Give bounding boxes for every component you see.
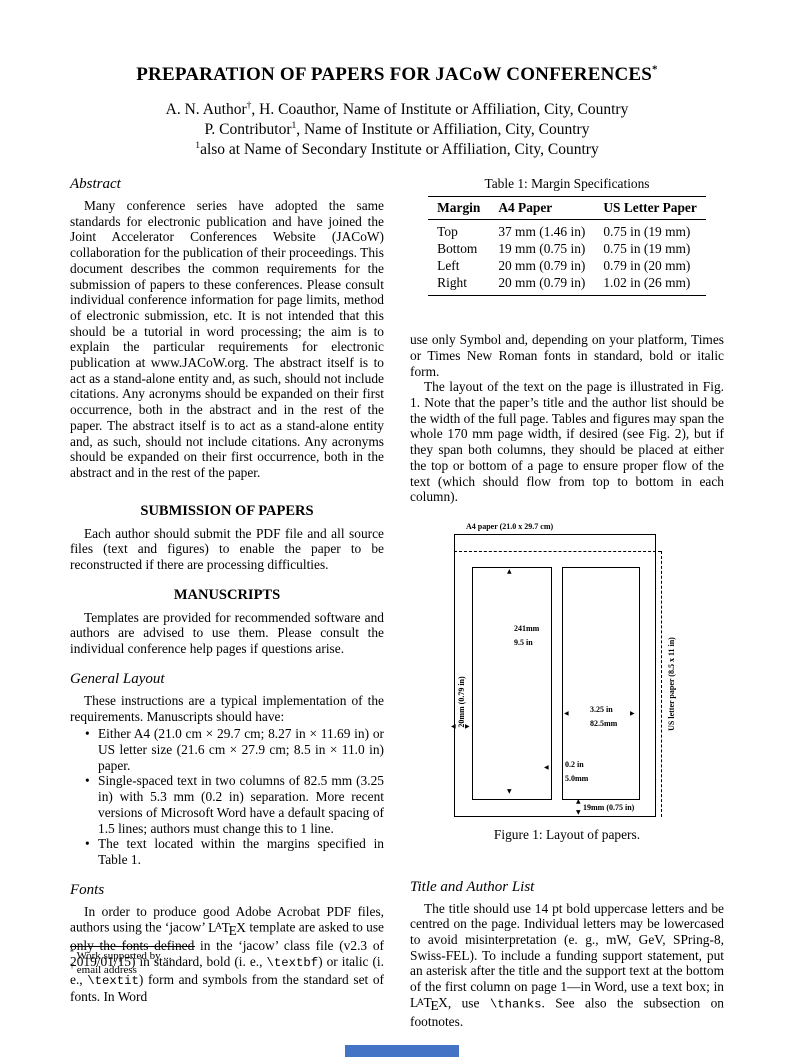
table-cell: 19 mm (0.75 in) bbox=[489, 241, 594, 258]
bottom-margin-label: 19mm (0.75 in) bbox=[583, 803, 634, 813]
table-row: Bottom 19 mm (0.75 in) 0.75 in (19 mm) bbox=[428, 241, 706, 258]
dimension-arrow-left-icon: ◀ bbox=[544, 765, 549, 771]
table-header-cell: A4 Paper bbox=[489, 196, 594, 220]
table-cell: Left bbox=[428, 257, 489, 274]
layout-paragraph: The layout of the text on the page is il… bbox=[410, 379, 724, 505]
footnote-marker: † bbox=[70, 961, 74, 970]
author-affiliation: , H. Coauthor, Name of Institute or Affi… bbox=[251, 101, 628, 118]
abstract-heading: Abstract bbox=[70, 176, 384, 193]
requirements-list: Either A4 (21.0 cm × 29.7 cm; 8.27 in × … bbox=[70, 726, 384, 867]
table-row: Left 20 mm (0.79 in) 0.79 in (20 mm) bbox=[428, 257, 706, 274]
author-line: 1also at Name of Secondary Institute or … bbox=[0, 140, 794, 160]
dimension-arrow-down-icon: ▼ bbox=[507, 789, 512, 795]
latex-logo: LATEX bbox=[410, 995, 448, 1010]
footnote-block: * Work supported by ... † email address bbox=[70, 946, 384, 977]
left-column: Abstract Many conference series have ado… bbox=[70, 176, 384, 1005]
author-list: A. N. Author†, H. Coauthor, Name of Inst… bbox=[0, 100, 794, 160]
column-width-in-label: 3.25 in bbox=[590, 705, 613, 715]
fonts-heading: Fonts bbox=[70, 882, 384, 899]
column-height-mm-label: 241mm bbox=[514, 624, 539, 634]
author-line: P. Contributor1, Name of Institute or Af… bbox=[0, 120, 794, 140]
latex-logo: LATEX bbox=[208, 920, 246, 935]
table-cell: 1.02 in (26 mm) bbox=[594, 274, 705, 296]
dimension-arrow-left-icon: ◀ bbox=[451, 724, 456, 730]
footnote-line: † email address bbox=[70, 964, 384, 978]
table-cell: Right bbox=[428, 274, 489, 296]
table-caption: Table 1: Margin Specifications bbox=[410, 176, 724, 192]
figure-caption: Figure 1: Layout of papers. bbox=[410, 827, 724, 843]
list-item: Single-spaced text in two columns of 82.… bbox=[98, 773, 384, 836]
table-cell: 37 mm (1.46 in) bbox=[489, 220, 594, 241]
a4-paper-label: A4 paper (21.0 x 29.7 cm) bbox=[466, 522, 553, 532]
table-cell: Top bbox=[428, 220, 489, 241]
footnote-rule bbox=[70, 946, 195, 947]
paper-title: PREPARATION OF PAPERS FOR JACoW CONFEREN… bbox=[0, 64, 794, 86]
column-height-in-label: 9.5 in bbox=[514, 638, 533, 648]
column-gap-in-label: 0.2 in bbox=[565, 760, 584, 770]
paper-page: PREPARATION OF PAPERS FOR JACoW CONFEREN… bbox=[0, 0, 794, 1057]
manuscripts-heading: MANUSCRIPTS bbox=[70, 587, 384, 604]
us-letter-paper-label: US letter paper (8.5 x 11 in) bbox=[664, 637, 680, 731]
dimension-arrow-up-icon: ▲ bbox=[507, 569, 512, 575]
column-gap-mm-label: 5.0mm bbox=[565, 774, 588, 784]
paper-header: PREPARATION OF PAPERS FOR JACoW CONFEREN… bbox=[0, 64, 794, 160]
general-layout-paragraph: These instructions are a typical impleme… bbox=[70, 693, 384, 724]
author-affiliation: also at Name of Secondary Institute or A… bbox=[200, 141, 599, 158]
table-cell: 0.75 in (19 mm) bbox=[594, 241, 705, 258]
us-letter-top-dashed-line bbox=[454, 551, 661, 552]
author-name: A. N. Author bbox=[166, 101, 247, 118]
dimension-arrow-right-icon: ▶ bbox=[630, 711, 635, 717]
figure-1: A4 paper (21.0 x 29.7 cm) ▲ ▼ 241mm 9.5 … bbox=[410, 521, 724, 823]
title-footnote-marker: * bbox=[652, 64, 658, 76]
table-header-cell: Margin bbox=[428, 196, 489, 220]
footnote-marker: * bbox=[70, 947, 74, 956]
table-cell: 20 mm (0.79 in) bbox=[489, 274, 594, 296]
list-item: Either A4 (21.0 cm × 29.7 cm; 8.27 in × … bbox=[98, 726, 384, 773]
title-author-list-heading: Title and Author List bbox=[410, 879, 724, 896]
footnote-text: email address bbox=[77, 964, 137, 976]
bottom-blue-bar bbox=[345, 1045, 459, 1057]
table-cell: 20 mm (0.79 in) bbox=[489, 257, 594, 274]
author-line: A. N. Author†, H. Coauthor, Name of Inst… bbox=[0, 100, 794, 120]
dimension-arrow-up-icon: ▲ bbox=[576, 799, 581, 805]
submission-paragraph: Each author should submit the PDF file a… bbox=[70, 526, 384, 573]
footnote-line: * Work supported by ... bbox=[70, 950, 384, 964]
title-author-paragraph: The title should use 14 pt bold uppercas… bbox=[410, 901, 724, 1030]
author-name: P. Contributor bbox=[205, 121, 292, 138]
dimension-arrow-right-icon: ▶ bbox=[465, 724, 470, 730]
dimension-arrow-left-icon: ◀ bbox=[564, 711, 569, 717]
general-layout-heading: General Layout bbox=[70, 671, 384, 688]
table-header-row: Margin A4 Paper US Letter Paper bbox=[428, 196, 706, 220]
paper-title-text: PREPARATION OF PAPERS FOR JACoW CONFEREN… bbox=[136, 64, 652, 85]
list-item: The text located within the margins spec… bbox=[98, 836, 384, 867]
submission-heading: SUBMISSION OF PAPERS bbox=[70, 503, 384, 520]
left-text-column-outline bbox=[472, 567, 552, 800]
column-width-mm-label: 82.5mm bbox=[590, 719, 617, 729]
table-cell: 0.75 in (19 mm) bbox=[594, 220, 705, 241]
author-affiliation: , Name of Institute or Affiliation, City… bbox=[296, 121, 589, 138]
table-row: Right 20 mm (0.79 in) 1.02 in (26 mm) bbox=[428, 274, 706, 296]
footnote-text: Work supported by ... bbox=[77, 950, 172, 962]
table-row: Top 37 mm (1.46 in) 0.75 in (19 mm) bbox=[428, 220, 706, 241]
table-cell: 0.79 in (20 mm) bbox=[594, 257, 705, 274]
right-column: Table 1: Margin Specifications Margin A4… bbox=[410, 176, 724, 1030]
table-cell: Bottom bbox=[428, 241, 489, 258]
abstract-paragraph: Many conference series have adopted the … bbox=[70, 198, 384, 481]
us-letter-right-dashed-line bbox=[661, 551, 662, 817]
margin-specifications-table: Margin A4 Paper US Letter Paper Top 37 m… bbox=[428, 196, 706, 297]
left-margin-label: 20mm (0.79 in) bbox=[454, 676, 470, 727]
table-header-cell: US Letter Paper bbox=[594, 196, 705, 220]
dimension-arrow-down-icon: ▼ bbox=[576, 810, 581, 816]
symbol-paragraph: use only Symbol and, depending on your p… bbox=[410, 332, 724, 379]
manuscripts-paragraph: Templates are provided for recommended s… bbox=[70, 610, 384, 657]
